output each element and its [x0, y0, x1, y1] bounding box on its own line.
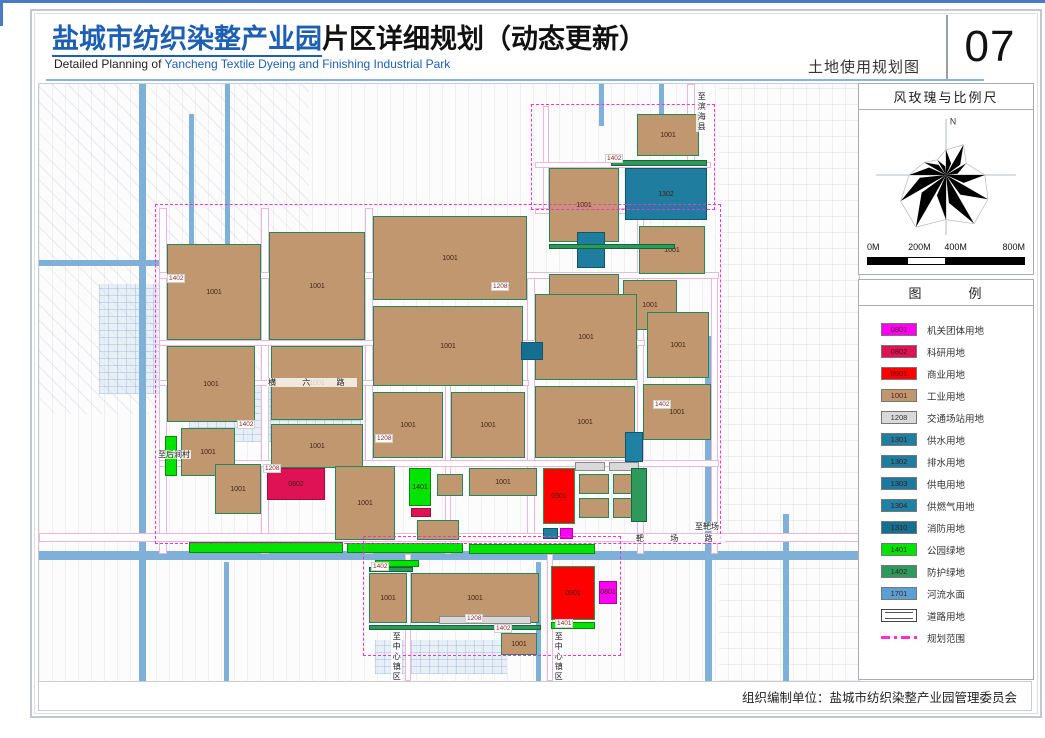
- scale-seg-3: [946, 258, 1024, 264]
- legend-item: 1001工业用地: [881, 386, 1033, 405]
- parcel-1001: [417, 520, 459, 540]
- legend-item: 1208交通场站用地: [881, 408, 1033, 427]
- footer-bar: 组织编制单位：盐城市纺织染整产业园管理委员会: [38, 681, 1032, 711]
- village-texture: [99, 284, 159, 394]
- scale-400: 400M: [944, 242, 967, 252]
- parcel-1001: 1001: [167, 244, 261, 340]
- canal: [599, 84, 604, 126]
- parcel-1208: [439, 616, 531, 624]
- parcel-1001: 1001: [451, 392, 525, 458]
- legend-label: 规划范围: [927, 631, 965, 645]
- scale-800: 800M: [1002, 242, 1025, 252]
- page-title-rest: 片区详细规划（动态更新）: [322, 24, 646, 54]
- scale-bar: [867, 257, 1025, 265]
- sheet-number-box: 07: [946, 15, 1032, 79]
- parcel-1001: 1001: [549, 168, 619, 242]
- parcel-1302: [577, 232, 605, 268]
- legend-item: 1301供水用地: [881, 430, 1033, 449]
- legend-swatch-0901: 0901: [881, 367, 917, 380]
- legend-label: 消防用地: [927, 521, 965, 535]
- parcel-code-chip: 1402: [605, 154, 623, 163]
- legend-swatch-1208: 1208: [881, 411, 917, 424]
- parcel-1302: 1302: [625, 168, 707, 220]
- legend-label: 公园绿地: [927, 543, 965, 557]
- legend-item: 1310消防用地: [881, 518, 1033, 537]
- legend-swatch-1310: 1310: [881, 521, 917, 534]
- legend-item: 0901商业用地: [881, 364, 1033, 383]
- legend-swatch-1701: 1701: [881, 587, 917, 600]
- parcel-1304: [625, 432, 643, 462]
- parcel-1401: [469, 544, 595, 554]
- planning-boundary-swatch: [881, 636, 917, 639]
- legend-label: 交通场站用地: [927, 411, 984, 425]
- canal: [224, 562, 229, 681]
- wind-rose-svg: N: [866, 111, 1026, 239]
- legend-swatch-0801: 0801: [881, 323, 917, 336]
- legend-label: 供燃气用地: [927, 499, 975, 513]
- map-road-label: 横 六 路: [267, 378, 357, 387]
- parcel-1001: 1001: [373, 392, 443, 458]
- scale-200: 200M: [908, 242, 931, 252]
- parcel-1001: 1001: [215, 464, 261, 514]
- title-area: 盐城市纺织染整产业园片区详细规划（动态更新） Detailed Planning…: [46, 15, 984, 81]
- map-canvas: 1001130210011001100110011001100110011001…: [38, 83, 860, 682]
- parcel-1001: 1001: [647, 312, 709, 378]
- subtitle-highlight: Yancheng Textile Dyeing and Finishing In…: [165, 57, 451, 71]
- parcel-code-chip: 1402: [494, 624, 512, 633]
- legend-swatch-1304: 1304: [881, 499, 917, 512]
- windrose-panel-title: 风玫瑰与比例尺: [859, 84, 1033, 110]
- parcel-0901: 0901: [543, 468, 575, 524]
- parcel-1001: 1001: [369, 573, 407, 623]
- parcel-1001: 1001: [637, 114, 699, 156]
- parcel-1001: 1001: [269, 232, 365, 340]
- parcel-1401: [347, 543, 463, 553]
- wind-rose: N: [859, 110, 1033, 240]
- title-block: 盐城市纺织染整产业园片区详细规划（动态更新） Detailed Planning…: [38, 15, 1032, 81]
- parcel-1001: 1001: [639, 226, 705, 274]
- parcel-code-chip: 1402: [653, 400, 671, 409]
- parcel-1001: 1001: [501, 633, 537, 655]
- parcel-code-chip: 1208: [465, 614, 483, 623]
- legend-panel: 图 例 0801机关团体用地0802科研用地0901商业用地1001工业用地12…: [858, 279, 1034, 680]
- parcel-1208: [575, 462, 605, 471]
- legend-title: 图 例: [859, 280, 1033, 306]
- plan-sheet: 盐城市纺织染整产业园片区详细规划（动态更新） Detailed Planning…: [30, 9, 1042, 718]
- parcel-code-chip: 1208: [263, 464, 281, 473]
- page-title: 盐城市纺织染整产业园片区详细规划（动态更新）: [52, 17, 646, 56]
- legend-swatch-1401: 1401: [881, 543, 917, 556]
- legend-item: 道路用地: [881, 606, 1033, 625]
- legend-item: 1701河流水面: [881, 584, 1033, 603]
- parcel-1402: [369, 625, 541, 630]
- parcel-1401: 1401: [409, 468, 431, 506]
- map-road-label: 至中心镇区: [553, 632, 564, 682]
- legend-label: 科研用地: [927, 345, 965, 359]
- parcel-1001: [579, 474, 609, 494]
- legend-item: 1303供电用地: [881, 474, 1033, 493]
- scale-0: 0M: [867, 242, 880, 252]
- parcel-1001: 1001: [271, 424, 363, 468]
- legend-label: 道路用地: [927, 609, 965, 623]
- page-title-highlight: 盐城市纺织染整产业园: [52, 24, 322, 57]
- parcel-1001: 1001: [469, 468, 537, 496]
- canal: [139, 84, 146, 681]
- parcel-0801: 0801: [599, 581, 617, 604]
- scale-seg-2: [907, 258, 946, 264]
- legend-swatch-1301: 1301: [881, 433, 917, 446]
- map-road-label: 至后涧村: [157, 450, 191, 459]
- parcel-code-chip: 1402: [371, 562, 389, 571]
- legend-label: 排水用地: [927, 455, 965, 469]
- legend-swatch-1402: 1402: [881, 565, 917, 578]
- legend-label: 河流水面: [927, 587, 965, 601]
- parcel-1301: [543, 528, 558, 539]
- legend-label: 商业用地: [927, 367, 965, 381]
- road-land-swatch: [881, 609, 917, 622]
- legend-swatch-0802: 0802: [881, 345, 917, 358]
- parcel-1402: [631, 468, 647, 522]
- legend-item: 0802科研用地: [881, 342, 1033, 361]
- map-sidebar: 风玫瑰与比例尺 N 0M 200M 400M 800M 图 例: [858, 83, 1034, 680]
- legend-label: 供水用地: [927, 433, 965, 447]
- parcel-1310: [521, 342, 543, 360]
- parcel-1001: [579, 498, 609, 518]
- parcel-0801: [560, 528, 573, 539]
- window-top-edge: [0, 0, 1045, 3]
- legend-item: 1401公园绿地: [881, 540, 1033, 559]
- legend-label: 机关团体用地: [927, 323, 984, 337]
- legend-label: 防护绿地: [927, 565, 965, 579]
- parcel-1001: 1001: [535, 294, 637, 380]
- map-road-label: 至滨海县: [696, 92, 707, 132]
- map-road-label: 靶 场 路: [635, 534, 725, 543]
- sheet-number: 07: [965, 22, 1016, 72]
- parcel-1401: [189, 542, 343, 553]
- parcel-1001: 1001: [643, 384, 711, 440]
- canal: [189, 114, 194, 264]
- legend-item: 1402防护绿地: [881, 562, 1033, 581]
- road: [527, 274, 535, 554]
- parcel-1001: [437, 474, 463, 496]
- scale-seg-1: [868, 258, 907, 264]
- legend-list: 0801机关团体用地0802科研用地0901商业用地1001工业用地1208交通…: [859, 306, 1033, 647]
- subtitle-prefix: Detailed Planning of: [54, 57, 165, 71]
- legend-item: 0801机关团体用地: [881, 320, 1033, 339]
- parcel-1001: 1001: [373, 306, 523, 386]
- parcel-code-chip: 1208: [375, 434, 393, 443]
- legend-label: 供电用地: [927, 477, 965, 491]
- parcel-code-chip: 1402: [167, 274, 185, 283]
- parcel-1402: [549, 244, 675, 249]
- parcel-code-chip: 1402: [237, 420, 255, 429]
- road: [711, 274, 718, 554]
- parcel-1001: 1001: [167, 346, 255, 422]
- parcel-0802: [411, 508, 431, 517]
- legend-swatch-1001: 1001: [881, 389, 917, 402]
- parcel-code-chip: 1208: [491, 282, 509, 291]
- parcel-0901: 0901: [551, 566, 595, 620]
- parcel-1402: [611, 160, 707, 166]
- scale-labels: 0M 200M 400M 800M: [867, 242, 1025, 256]
- page-subtitle: Detailed Planning of Yancheng Textile Dy…: [54, 57, 450, 71]
- legend-label: 工业用地: [927, 389, 965, 403]
- parcel-1001: 1001: [535, 386, 635, 458]
- legend-swatch-1302: 1302: [881, 455, 917, 468]
- canal: [225, 84, 230, 270]
- legend-item: 1304供燃气用地: [881, 496, 1033, 515]
- field-texture: [719, 84, 859, 681]
- parcel-1001: 1001: [335, 466, 395, 540]
- legend-swatch-1303: 1303: [881, 477, 917, 490]
- windrose-panel: 风玫瑰与比例尺 N 0M 200M 400M 800M: [858, 83, 1034, 275]
- legend-item: 规划范围: [881, 628, 1033, 647]
- north-label: N: [950, 117, 956, 127]
- map-road-label: 至靶场: [694, 522, 720, 531]
- sheet-label: 土地使用规划图: [808, 56, 920, 77]
- window-left-edge: [0, 0, 3, 26]
- footer-credit: 组织编制单位：盐城市纺织染整产业园管理委员会: [742, 687, 1017, 706]
- map-road-label: 至中心镇区: [391, 632, 402, 682]
- parcel-code-chip: 1401: [555, 619, 573, 628]
- legend-item: 1302排水用地: [881, 452, 1033, 471]
